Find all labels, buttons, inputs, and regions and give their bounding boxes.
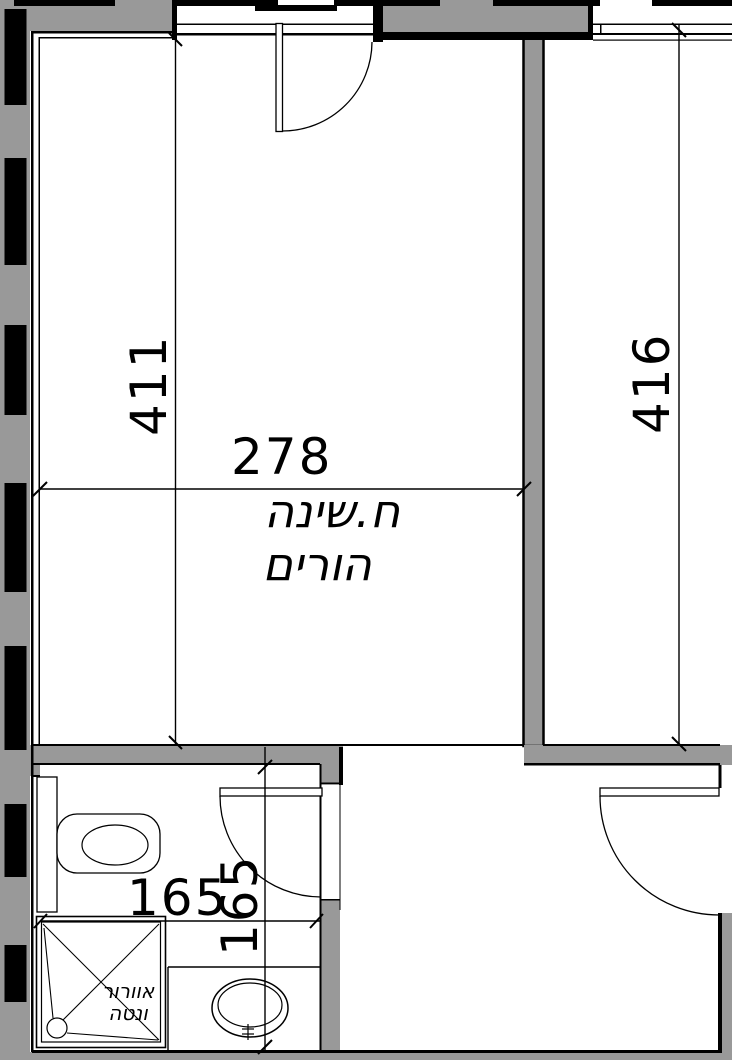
left-wall-face-inner <box>39 37 41 745</box>
left-column-6 <box>5 804 27 877</box>
right-pier-face <box>718 913 722 1052</box>
window-right-inner-line <box>593 33 732 35</box>
top-wall-face-outer-left <box>31 31 176 34</box>
dim-411-value: 411 <box>120 335 178 436</box>
bathroom-right-wall-face <box>320 764 322 1052</box>
top-wall-section-4 <box>493 0 600 6</box>
bathroom-top-face <box>33 763 320 765</box>
bedroom-door-leaf <box>276 24 283 132</box>
bathroom-top-wall <box>32 745 343 765</box>
dim-165-v-value: 165 <box>211 855 269 956</box>
wall-top-bump-middle <box>440 0 493 6</box>
dim-278-value: 278 <box>231 428 332 486</box>
right-room-bottom-wall <box>524 745 732 765</box>
top-wall-bottom-edge-middle <box>380 32 593 40</box>
window-jamb-right <box>588 3 593 33</box>
bathroom-door-leaf <box>220 788 322 796</box>
bedroom-bottom-face <box>32 744 524 746</box>
top-wall-face-inner-left <box>39 37 177 39</box>
shower-drain <box>47 1018 67 1038</box>
pier-top-bottom-edge <box>320 783 339 785</box>
washbasin-icon <box>168 967 320 1050</box>
window-right-outer-line <box>593 24 732 26</box>
shower-label-line2: ונטה <box>108 1001 148 1025</box>
floor-plan-drawing: 278 411 416 165 165 ח.שינה הורים אוורור … <box>0 0 732 1060</box>
shower-label-line1: אוורור <box>102 979 155 1003</box>
hall-door-swing-arc <box>600 796 719 915</box>
hall-door-pier-right <box>722 913 732 1052</box>
window-left-outer-line <box>176 24 373 26</box>
room-label-line1: ח.שינה <box>264 484 400 538</box>
left-column-3 <box>5 325 27 415</box>
exterior-wall-top-middle <box>380 5 588 32</box>
basin-outer-rim <box>212 979 288 1037</box>
pier-top-right-edge <box>339 747 343 785</box>
left-column-1 <box>5 9 27 105</box>
bathroom-door-threshold <box>340 785 341 910</box>
toilet-cistern <box>37 777 57 912</box>
top-wall-section-3 <box>334 0 440 6</box>
bathroom-door-pier-bottom <box>320 900 340 1052</box>
bottom-wall-face <box>32 1050 722 1053</box>
bottom-wall-band <box>0 1052 732 1060</box>
hall-door-leaf <box>600 788 719 796</box>
top-wall-section-offset <box>255 5 337 11</box>
dim-416-value: 416 <box>623 333 681 434</box>
left-wall-face-outer <box>31 31 34 1052</box>
left-column-7 <box>5 945 27 1002</box>
left-column-4 <box>5 483 27 592</box>
floor-plan: 278 411 416 165 165 ח.שינה הורים אוורור … <box>0 0 732 1060</box>
right-room-top-face <box>593 40 732 41</box>
pier-bottom-top-edge <box>320 899 340 901</box>
window-left-inner-line <box>176 33 373 36</box>
hall-top-face <box>524 763 720 766</box>
right-room-bottom-face <box>543 744 720 746</box>
room-label-line2: הורים <box>262 537 371 591</box>
labels: 278 411 416 165 165 ח.שינה הורים אוורור … <box>102 333 681 1025</box>
top-wall-section-1 <box>14 0 115 6</box>
wall-top-bump-left <box>115 0 172 5</box>
hall-door-jamb <box>719 765 722 788</box>
bedroom-door-swing-arc <box>283 42 373 131</box>
top-wall-section-5 <box>652 0 732 6</box>
left-column-5 <box>5 646 27 750</box>
left-column-2 <box>5 158 27 265</box>
window-right-mullion <box>600 24 602 35</box>
partition-wall-between-rooms <box>524 37 544 746</box>
